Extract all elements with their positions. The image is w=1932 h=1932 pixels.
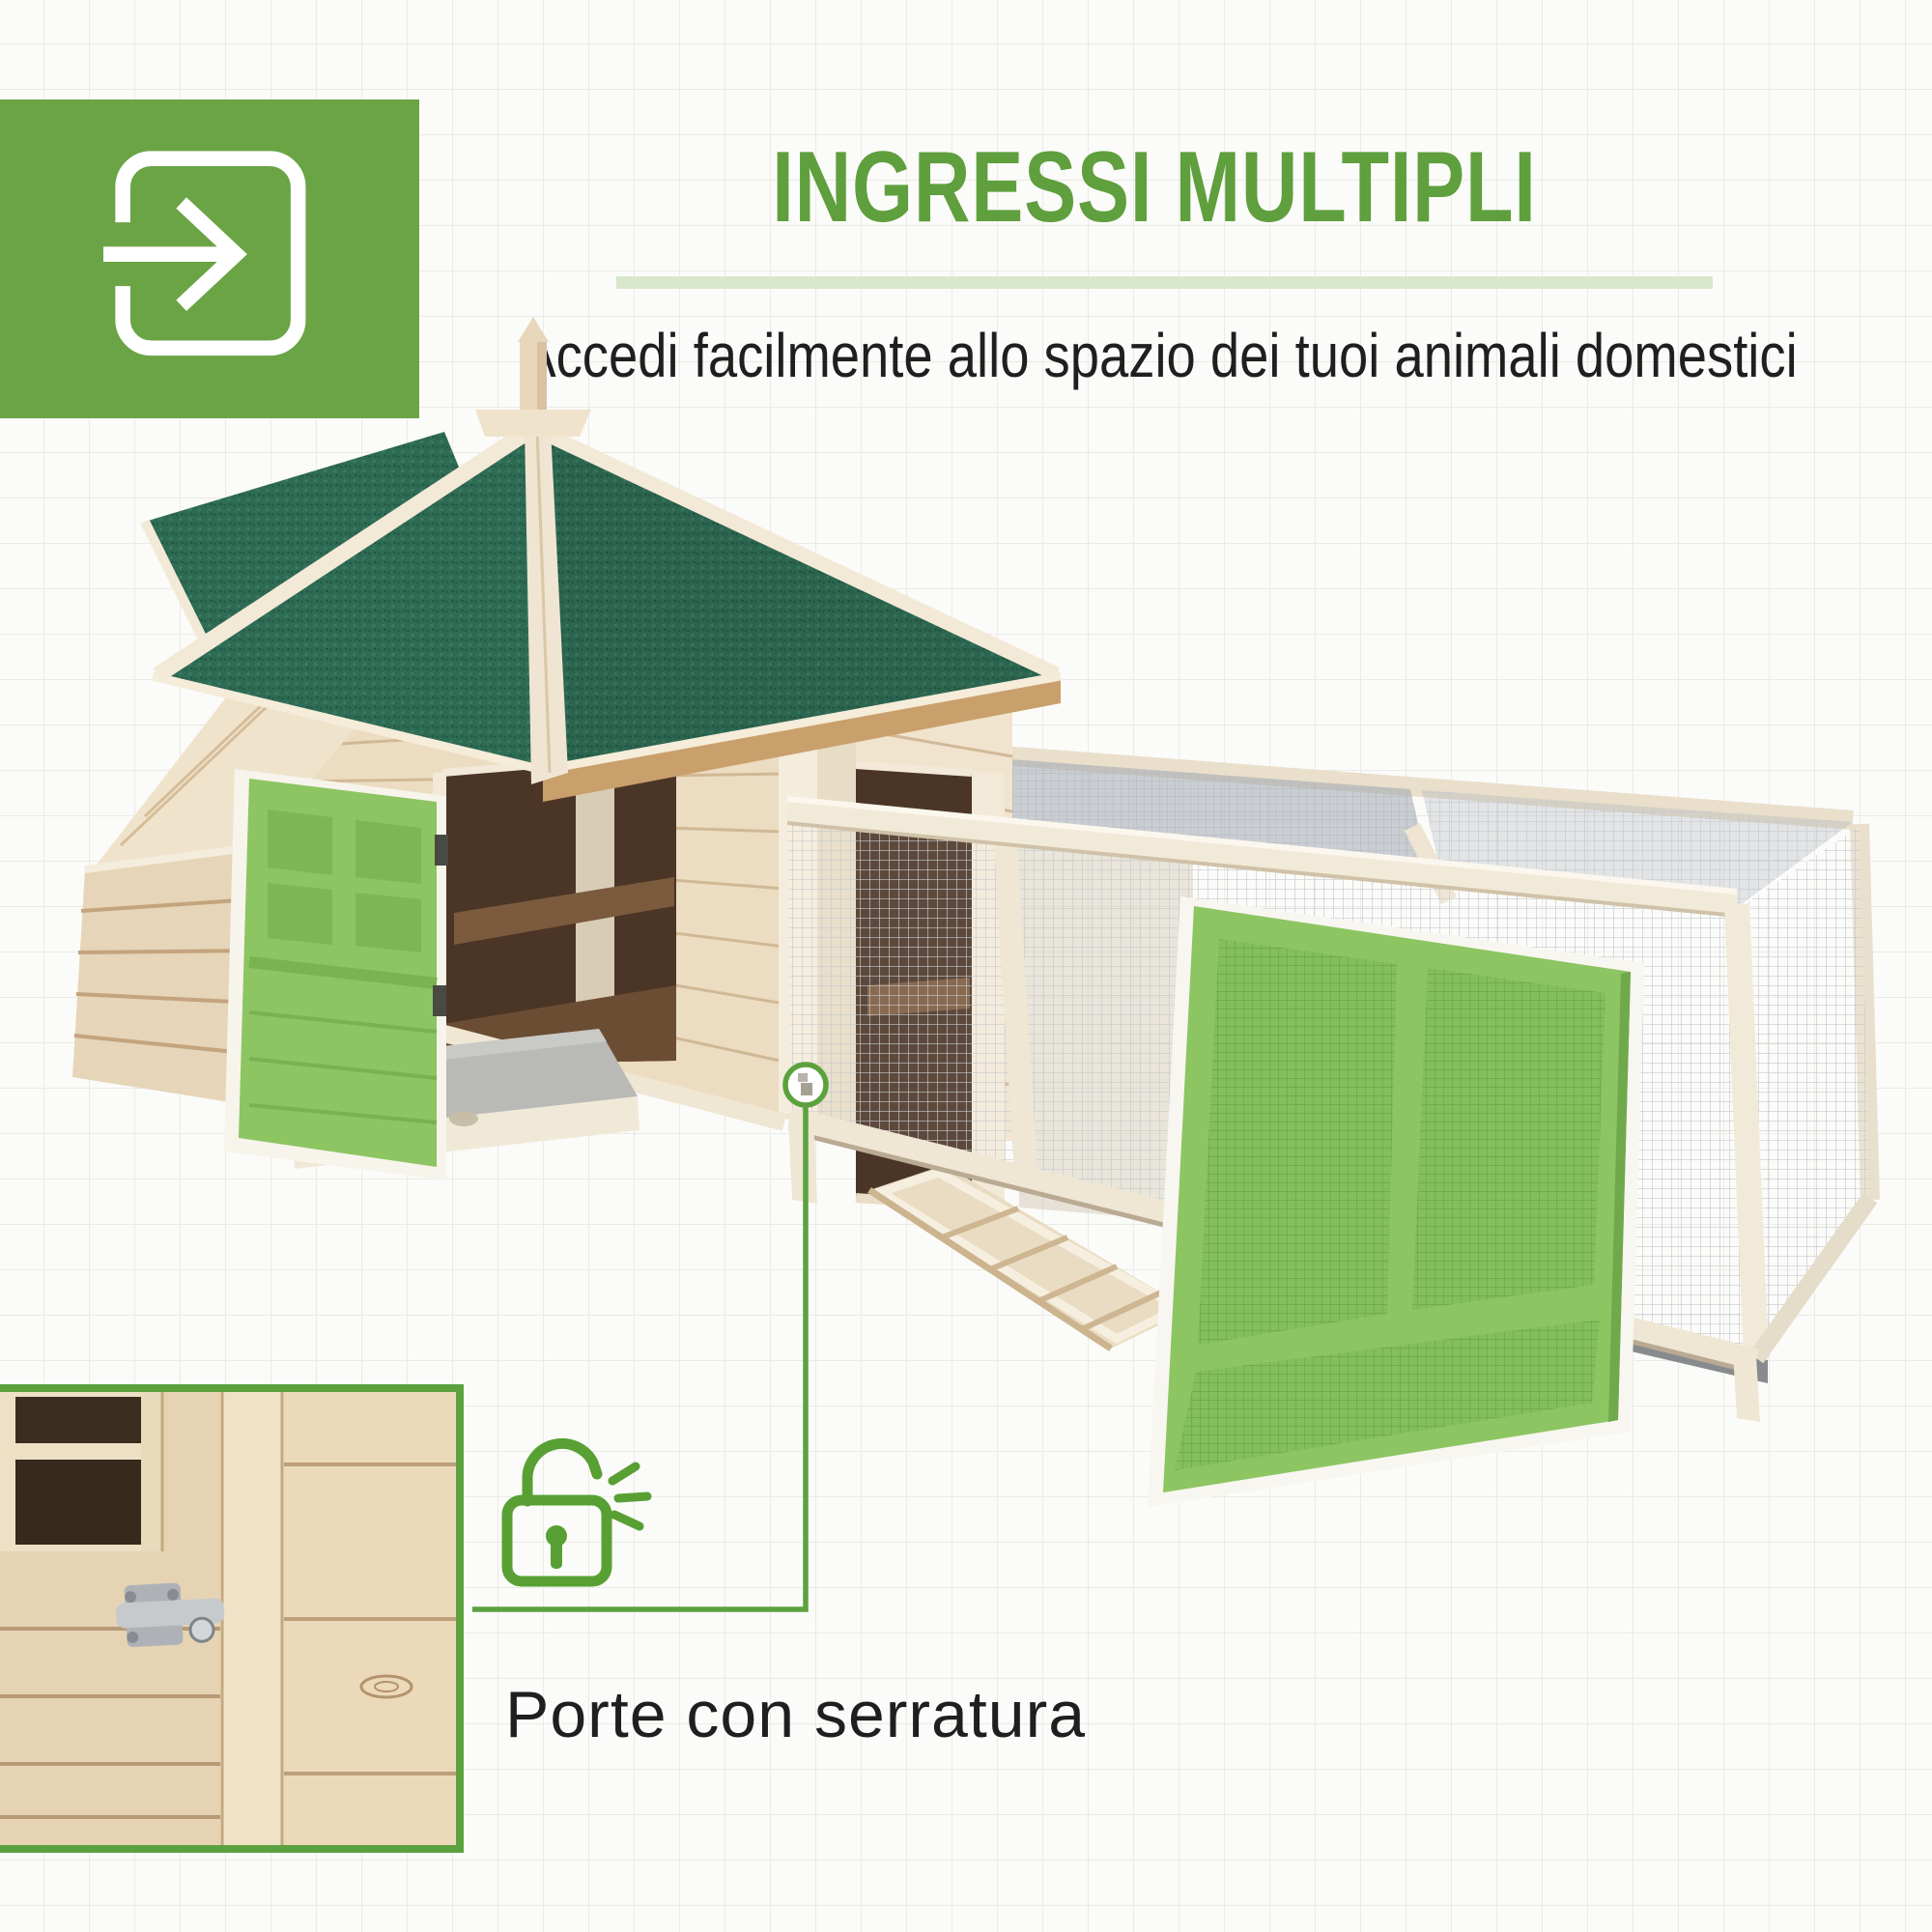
door-latch-photo — [0, 1384, 464, 1853]
coop-door-highlighted — [224, 769, 448, 1180]
marketing-page: INGRESSI MULTIPLI Accedi facilmente allo… — [0, 0, 1932, 1932]
padlock-unlocked-icon — [488, 1428, 662, 1602]
run-door-highlighted — [1148, 896, 1644, 1507]
run-front — [787, 799, 1870, 1507]
feature-caption: Porte con serratura — [505, 1677, 1086, 1752]
latch-marker — [785, 1065, 826, 1105]
house-doorway — [433, 753, 676, 1065]
door-latch-photo-content — [0, 1392, 456, 1845]
roof-finial — [475, 317, 591, 437]
